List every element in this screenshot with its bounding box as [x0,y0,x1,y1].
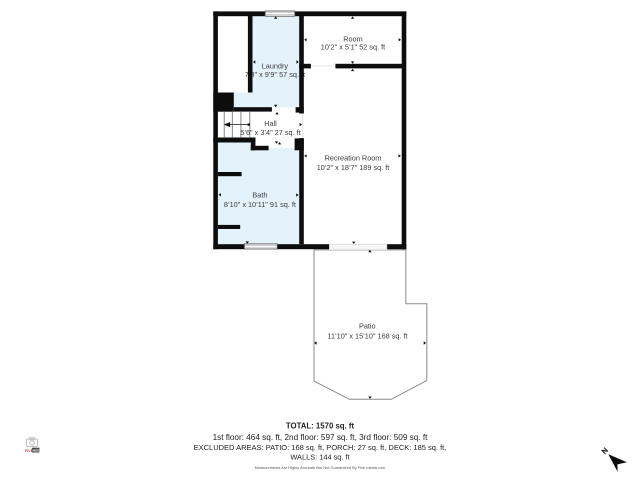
svg-text:8’10" x 10’11" 91 sq. ft: 8’10" x 10’11" 91 sq. ft [224,200,296,209]
svg-text:TOTAL: 1570 sq. ft: TOTAL: 1570 sq. ft [286,422,355,431]
svg-text:Hall: Hall [264,119,277,128]
svg-text:EXCLUDED AREAS: PATIO: 168 sq.: EXCLUDED AREAS: PATIO: 168 sq. ft, PORCH… [194,443,447,452]
svg-text:Recreation Room: Recreation Room [325,153,382,162]
svg-text:WALLS: 144 sq. ft: WALLS: 144 sq. ft [290,453,349,462]
svg-text:7’8" x 9’9" 57 sq. ft: 7’8" x 9’9" 57 sq. ft [245,70,305,79]
svg-text:Measurements Are Highly Accura: Measurements Are Highly Accurate But Not… [255,465,386,470]
svg-text:Bath: Bath [252,191,267,200]
svg-text:1st floor: 464 sq. ft, 2nd flo: 1st floor: 464 sq. ft, 2nd floor: 597 sq… [213,433,429,442]
svg-text:10’2" x 18’7" 189 sq. ft: 10’2" x 18’7" 189 sq. ft [317,163,390,172]
svg-text:Patio: Patio [359,322,376,331]
svg-text:5’6" x 3’4" 27 sq. ft: 5’6" x 3’4" 27 sq. ft [240,128,300,137]
svg-text:11’10" x 15’10" 168 sq. ft: 11’10" x 15’10" 168 sq. ft [327,331,407,340]
svg-text:MEDIA: MEDIA [32,449,41,453]
svg-text:10’2" x 5’1" 52 sq. ft: 10’2" x 5’1" 52 sq. ft [321,43,385,52]
